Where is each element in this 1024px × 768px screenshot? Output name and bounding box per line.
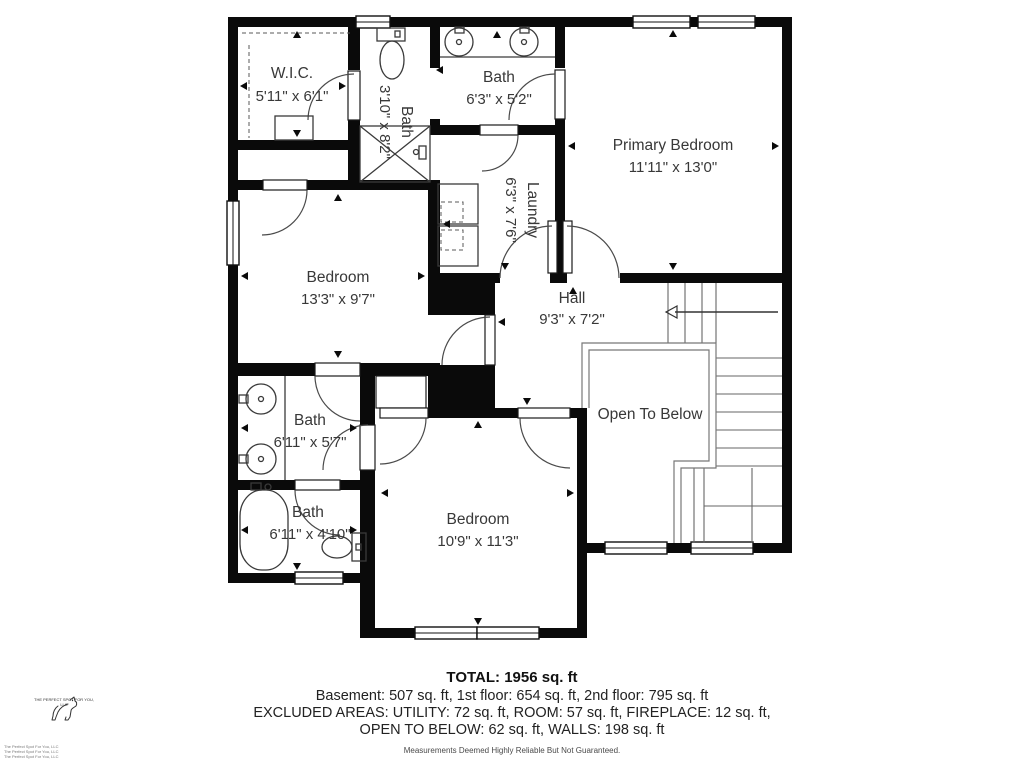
- label-bath-top-dims: 6'3" x 5'2": [466, 91, 532, 108]
- label-laundry: Laundry 6'3" x 7'6": [502, 177, 541, 243]
- floor-areas-text: Basement: 507 sq. ft, 1st floor: 654 sq.…: [0, 688, 1024, 704]
- excluded-areas-text-2: OPEN TO BELOW: 62 sq. ft, WALLS: 198 sq.…: [0, 722, 1024, 738]
- window-bedroom-bottom-2: [477, 627, 539, 639]
- label-wic-dims: 5'11" x 6'1": [256, 88, 329, 105]
- label-hall-dims: 9'3" x 7'2": [539, 311, 605, 328]
- dog-logo-icon: [34, 696, 94, 722]
- window-stairwell-2: [691, 542, 753, 554]
- label-wic-name: W.I.C.: [271, 65, 313, 82]
- label-hall-name: Hall: [559, 290, 586, 307]
- excluded-areas-text-1: EXCLUDED AREAS: UTILITY: 72 sq. ft, ROOM…: [0, 705, 1024, 721]
- corner-watermark: The Perfect Spot For You, LLC The Perfec…: [4, 744, 58, 759]
- wic-closet-rods: [242, 33, 350, 140]
- label-bedroom-left-dims: 13'3" x 9'7": [301, 291, 375, 308]
- floor-plan-drawing: W.I.C. 5'11" x 6'1" Bath 3'10" x 8'2" Ba…: [0, 0, 1024, 768]
- label-laundry-dims: 6'3" x 7'6": [502, 177, 519, 243]
- label-primary-name: Primary Bedroom: [613, 137, 734, 154]
- window-bedroom-left: [227, 201, 239, 265]
- label-bath-upper: Bath 3'10" x 8'2": [376, 85, 415, 159]
- door-alcove: [376, 376, 426, 408]
- disclaimer-text: Measurements Deemed Highly Reliable But …: [0, 746, 1024, 755]
- label-bath-upper-name: Bath: [398, 106, 415, 138]
- label-bath-lower-dims: 6'11" x 4'10": [269, 526, 350, 543]
- label-bedroom-bottom-name: Bedroom: [447, 511, 510, 528]
- company-logo: THE PERFECT SPOT FOR YOU, LLC: [34, 696, 94, 707]
- vanity-top-icon: [440, 27, 555, 57]
- window-primary-2: [698, 16, 755, 28]
- toilet-icon: [377, 28, 405, 79]
- door-bedroom-bottom-right: [518, 408, 570, 468]
- door-bedroom-left-closet: [262, 180, 307, 235]
- window-bath-upper: [356, 16, 390, 28]
- label-bath-mid-name: Bath: [294, 412, 326, 429]
- stair-direction-arrow: [666, 306, 778, 318]
- label-bath-mid-dims: 6'11" x 5'7": [274, 434, 347, 451]
- door-bath-laundry: [480, 125, 518, 171]
- label-bedroom-bottom-dims: 10'9" x 11'3": [437, 533, 518, 550]
- window-stairwell-1: [605, 542, 667, 554]
- label-bedroom-left-name: Bedroom: [307, 269, 370, 286]
- door-hall-bedroom-left: [442, 315, 495, 365]
- corner-watermark-line: The Perfect Spot For You, LLC: [4, 754, 58, 759]
- window-primary-1: [633, 16, 690, 28]
- label-laundry-name: Laundry: [524, 182, 541, 238]
- label-bath-top-name: Bath: [483, 69, 515, 86]
- window-bedroom-bottom-1: [415, 627, 477, 639]
- shower-icon: [360, 126, 430, 182]
- label-primary-dims: 11'11" x 13'0": [629, 159, 717, 176]
- window-bath-lower: [295, 572, 343, 584]
- label-bath-lower-name: Bath: [292, 504, 324, 521]
- door-bedroom-bottom-left: [380, 408, 428, 464]
- washer-dryer-icon: [438, 184, 478, 266]
- label-bath-upper-dims: 3'10" x 8'2": [376, 85, 393, 159]
- label-open-below: Open To Below: [598, 406, 704, 423]
- open-to-below-outline: [582, 343, 716, 543]
- floor-plan-page: W.I.C. 5'11" x 6'1" Bath 3'10" x 8'2" Ba…: [0, 0, 1024, 768]
- total-area-text: TOTAL: 1956 sq. ft: [0, 669, 1024, 686]
- door-primary-hall: [563, 221, 619, 278]
